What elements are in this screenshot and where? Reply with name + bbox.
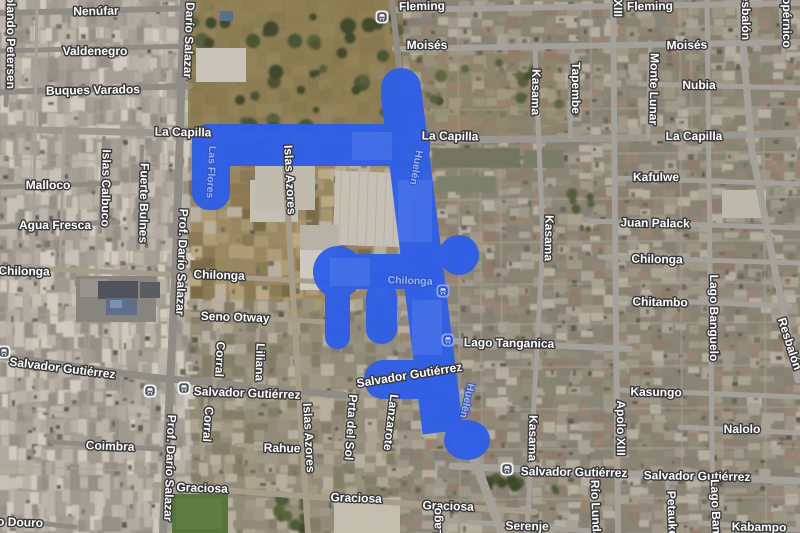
svg-text:Malloco: Malloco (26, 178, 71, 192)
svg-text:Agua Fresca: Agua Fresca (19, 218, 91, 232)
svg-text:Lago: Lago (430, 508, 444, 533)
svg-text:Chilonga: Chilonga (193, 267, 245, 283)
svg-text:Fleming: Fleming (627, 0, 673, 13)
svg-text:Rolando Petersen: Rolando Petersen (4, 0, 18, 89)
svg-text:Kasama: Kasama (526, 415, 541, 462)
svg-text:Resbalón: Resbalón (739, 0, 753, 40)
svg-text:Kasama: Kasama (529, 69, 544, 116)
svg-text:Fleming: Fleming (399, 0, 445, 13)
svg-text:Moisés: Moisés (407, 38, 448, 52)
svg-text:Rio Douro: Rio Douro (0, 514, 43, 530)
svg-text:Tapembe: Tapembe (569, 62, 583, 114)
svg-text:Copérnico: Copérnico (780, 0, 794, 48)
svg-text:Kabampo: Kabampo (732, 520, 787, 533)
svg-text:Corral: Corral (200, 406, 216, 442)
svg-text:Rahue: Rahue (264, 441, 301, 456)
svg-text:Río Lundazi: Río Lundazi (588, 480, 604, 533)
svg-text:Kafulwe: Kafulwe (633, 170, 679, 184)
svg-text:Buques Varados: Buques Varados (46, 82, 141, 98)
svg-text:Nubia: Nubia (682, 78, 716, 92)
svg-text:La Capilla: La Capilla (666, 129, 723, 143)
svg-text:Graciosa: Graciosa (330, 490, 382, 506)
svg-text:Coimbra: Coimbra (86, 438, 135, 454)
svg-text:Graciosa: Graciosa (176, 480, 228, 496)
svg-text:Corral: Corral (212, 341, 228, 377)
svg-text:XIII: XIII (611, 0, 625, 17)
svg-text:Islas Calbuco: Islas Calbuco (98, 149, 113, 227)
svg-text:Salvador Gutiérrez: Salvador Gutiérrez (644, 468, 751, 484)
svg-text:Seno Otway: Seno Otway (201, 309, 270, 325)
svg-text:Chitambo: Chitambo (632, 295, 688, 310)
svg-text:Lago Bangu: Lago Bangu (708, 479, 724, 533)
svg-text:La Capilla: La Capilla (155, 125, 212, 140)
svg-text:Juan Palack: Juan Palack (620, 215, 690, 230)
svg-text:Nenúfar: Nenúfar (73, 4, 119, 19)
svg-text:Serenje: Serenje (505, 519, 549, 533)
svg-text:Darío Salazar: Darío Salazar (181, 2, 198, 79)
svg-text:Liliana: Liliana (252, 343, 267, 382)
svg-text:Lago Tanganica: Lago Tanganica (464, 335, 555, 351)
svg-text:Chilonga: Chilonga (387, 274, 432, 288)
svg-text:Apolo XIII: Apolo XIII (614, 400, 628, 455)
svg-text:Kasama: Kasama (542, 215, 557, 262)
svg-text:Valdenegro: Valdenegro (63, 44, 128, 58)
svg-text:Kasungo: Kasungo (630, 385, 682, 400)
svg-text:Petauke: Petauke (664, 491, 680, 533)
svg-text:Chilonga: Chilonga (0, 264, 50, 279)
svg-text:Nalolo: Nalolo (724, 422, 761, 436)
svg-text:Salvador Gutiérrez: Salvador Gutiérrez (521, 464, 628, 480)
svg-text:Fuerte Bulnes: Fuerte Bulnes (136, 163, 151, 244)
svg-text:Monte Lunar: Monte Lunar (646, 53, 661, 126)
svg-text:La Capilla: La Capilla (422, 129, 479, 144)
svg-text:Chilonga: Chilonga (631, 252, 683, 267)
svg-text:Moisés: Moisés (666, 38, 707, 53)
svg-text:Lago Banguelo: Lago Banguelo (707, 275, 721, 362)
